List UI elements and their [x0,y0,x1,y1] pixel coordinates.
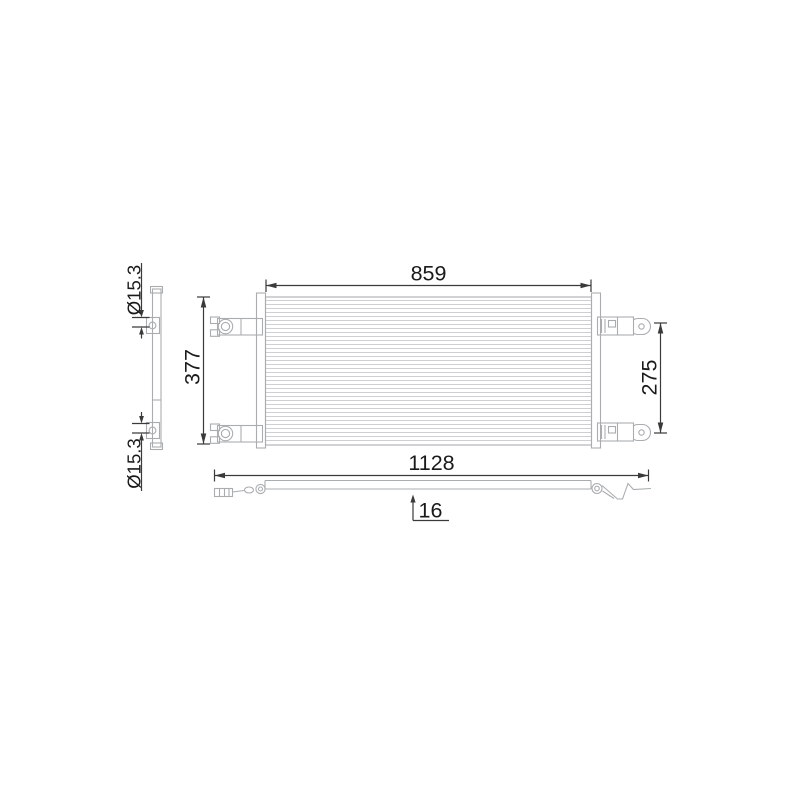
condenser-core [266,297,592,445]
front-view-left-brackets [211,317,263,443]
core-width-label: 859 [411,262,447,286]
mounting-span-label: 275 [638,360,662,396]
condenser-part-views [147,287,652,500]
left-tank [257,293,266,448]
bottom-profile-left-fitting [215,489,233,497]
condenser-drawing: 859 1128 16 377 275 Ø15.3 Ø15.3 [0,0,800,800]
core-tubes [266,301,592,441]
bottom-left-bracket [218,426,263,443]
bottom-port-diameter-label: Ø15.3 [124,438,145,488]
front-view-core [257,293,601,448]
overall-height-label: 377 [181,349,205,385]
bottom-profile-right-ring [592,484,602,494]
technical-drawing-canvas: 859 1128 16 377 275 Ø15.3 Ø15.3 [0,0,800,800]
top-port-diameter-label: Ø15.3 [124,265,145,315]
side-view-left [147,287,163,450]
depth-label: 16 [419,499,443,523]
side-view-bottom [215,481,652,500]
top-left-bracket [218,319,263,336]
dimension-annotations [132,263,667,521]
overall-width-label: 1128 [408,451,454,475]
